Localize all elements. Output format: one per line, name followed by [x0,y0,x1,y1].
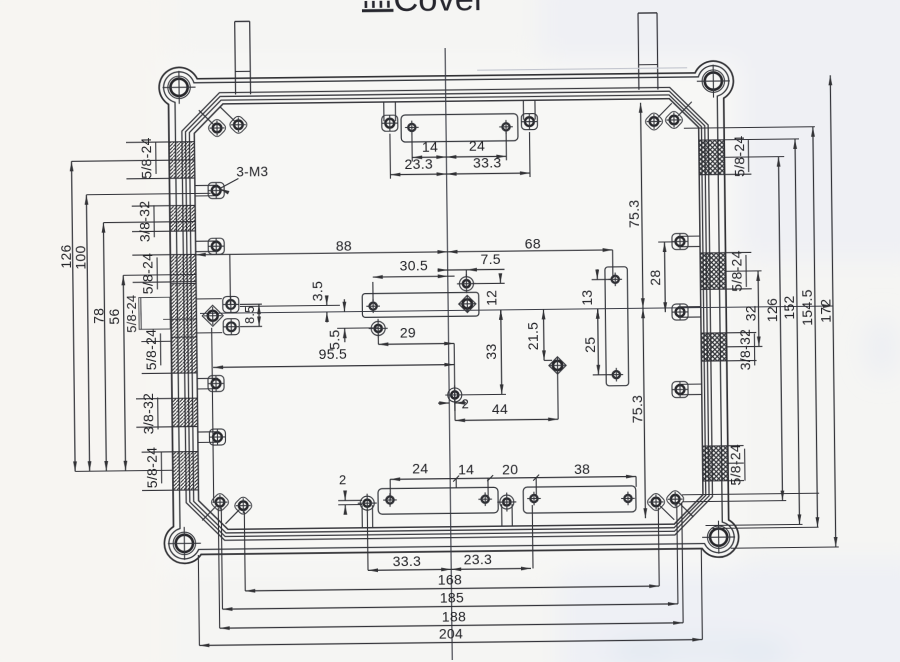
svg-text:25: 25 [582,337,598,353]
svg-text:30.5: 30.5 [400,257,429,273]
svg-text:33: 33 [483,343,499,359]
svg-text:5/8-24: 5/8-24 [139,253,155,295]
svg-text:24: 24 [412,460,428,476]
svg-text:172: 172 [818,298,834,322]
svg-text:21.5: 21.5 [525,322,541,351]
svg-text:154.5: 154.5 [799,289,815,326]
svg-text:13: 13 [579,289,595,305]
svg-text:3.5: 3.5 [309,281,325,302]
svg-text:88: 88 [336,237,352,253]
svg-text:2: 2 [461,396,469,411]
svg-text:14: 14 [458,461,474,477]
svg-text:5/8-24: 5/8-24 [143,329,159,371]
svg-text:Cover: Cover [393,0,485,19]
svg-text:152: 152 [781,295,797,319]
svg-text:7.5: 7.5 [480,251,501,267]
svg-text:33.3: 33.3 [393,553,422,569]
svg-text:5/8-24: 5/8-24 [144,447,160,489]
svg-text:8.5: 8.5 [243,306,257,324]
svg-text:168: 168 [438,571,462,587]
svg-text:20: 20 [502,461,518,477]
svg-text:29: 29 [400,324,416,340]
svg-text:2: 2 [339,472,347,487]
svg-text:3/8-32: 3/8-32 [140,393,156,435]
svg-text:44: 44 [492,401,508,417]
svg-text:3/8-32: 3/8-32 [136,201,152,243]
svg-text:23.3: 23.3 [404,156,433,172]
svg-text:188: 188 [442,608,466,624]
svg-text:3/8-32: 3/8-32 [737,329,753,371]
svg-text:78: 78 [90,308,106,324]
svg-text:5/8-24: 5/8-24 [727,444,743,486]
svg-text:38: 38 [574,461,590,477]
svg-text:3-M3: 3-M3 [236,164,268,179]
svg-text:185: 185 [440,589,464,605]
svg-text:95.5: 95.5 [319,346,348,362]
svg-text:32: 32 [743,305,759,321]
svg-text:24: 24 [469,138,485,154]
svg-text:5/8-24: 5/8-24 [731,135,747,177]
svg-text:126: 126 [764,298,780,322]
svg-text:12: 12 [483,290,499,306]
svg-text:5/8-24: 5/8-24 [138,137,154,179]
svg-text:28: 28 [647,269,663,285]
svg-text:75.3: 75.3 [629,395,645,424]
svg-text:5/8-24: 5/8-24 [124,295,139,333]
svg-text:100: 100 [72,245,88,269]
svg-text:14: 14 [422,139,438,155]
svg-text:56: 56 [106,308,122,324]
svg-text:33.3: 33.3 [473,154,502,170]
svg-text:68: 68 [525,236,541,252]
svg-text:23.3: 23.3 [464,551,493,567]
svg-text:204: 204 [439,625,463,641]
svg-text:75.3: 75.3 [626,200,642,229]
